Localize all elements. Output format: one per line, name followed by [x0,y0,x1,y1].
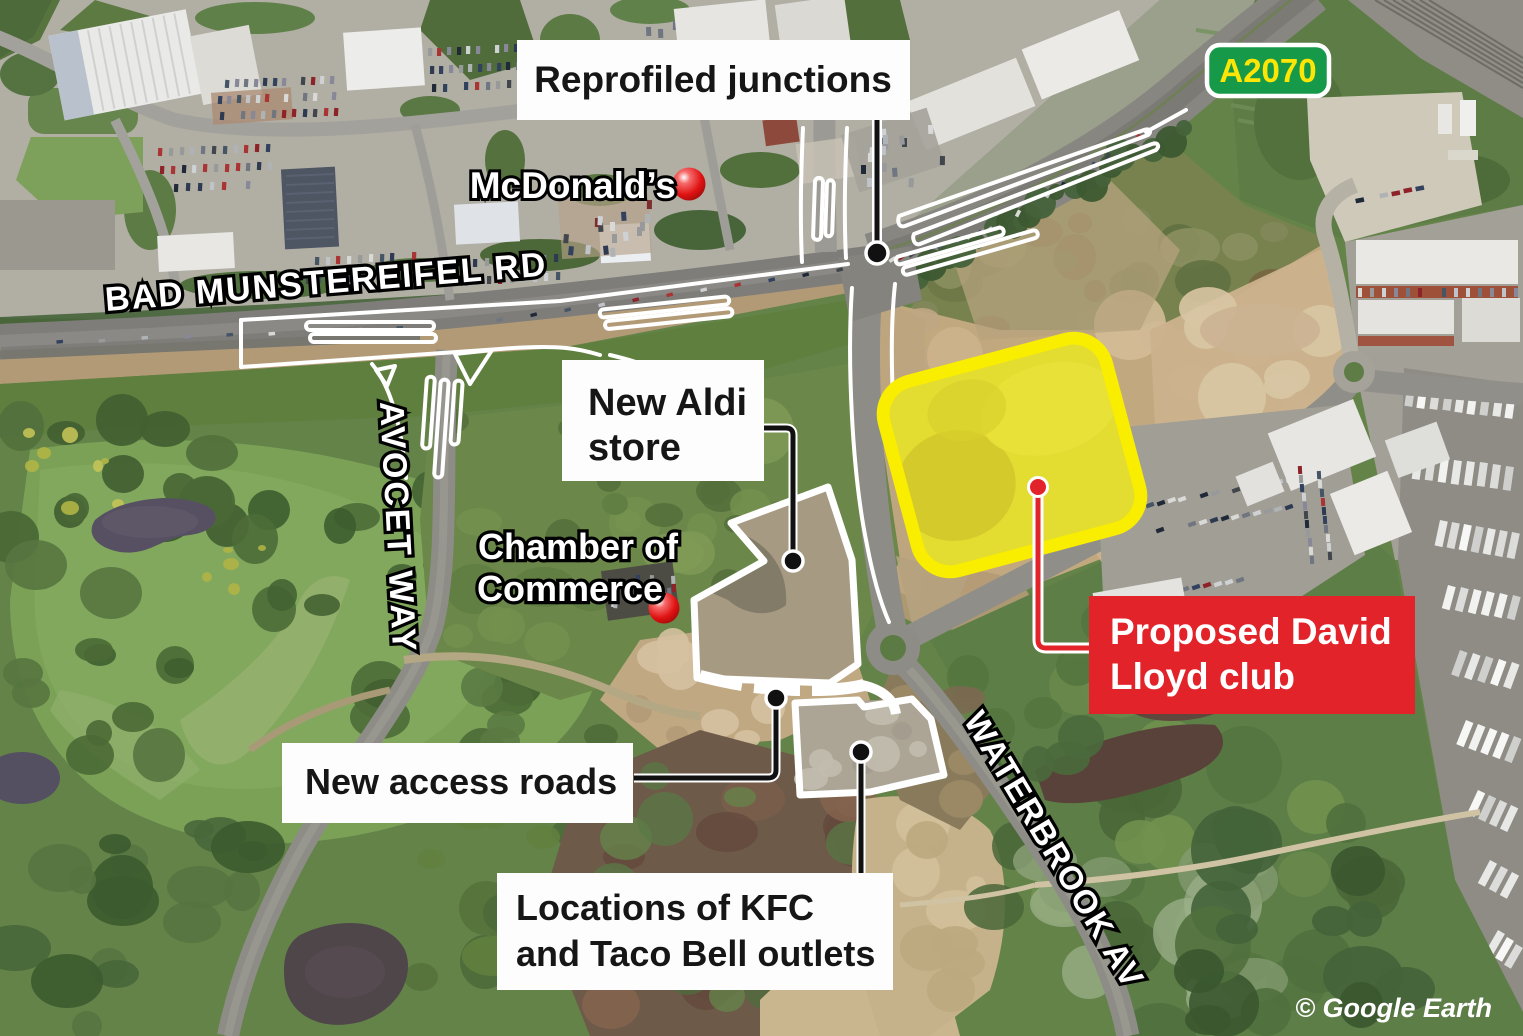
svg-text:store: store [588,427,681,469]
svg-text:Locations of KFC: Locations of KFC [516,887,814,928]
svg-text:© Google Earth: © Google Earth [1295,993,1492,1023]
svg-text:Commerce: Commerce [477,568,663,609]
svg-text:New access roads: New access roads [305,761,617,802]
svg-text:New Aldi: New Aldi [588,382,747,424]
svg-text:Lloyd club: Lloyd club [1110,656,1295,697]
svg-text:A2070: A2070 [1219,52,1316,89]
svg-text:Chamber of: Chamber of [478,526,679,567]
svg-text:Reprofiled junctions: Reprofiled junctions [534,59,892,100]
svg-text:and Taco Bell outlets: and Taco Bell outlets [516,933,875,974]
svg-text:Proposed David: Proposed David [1110,611,1392,652]
svg-text:McDonald’s: McDonald’s [470,165,676,206]
